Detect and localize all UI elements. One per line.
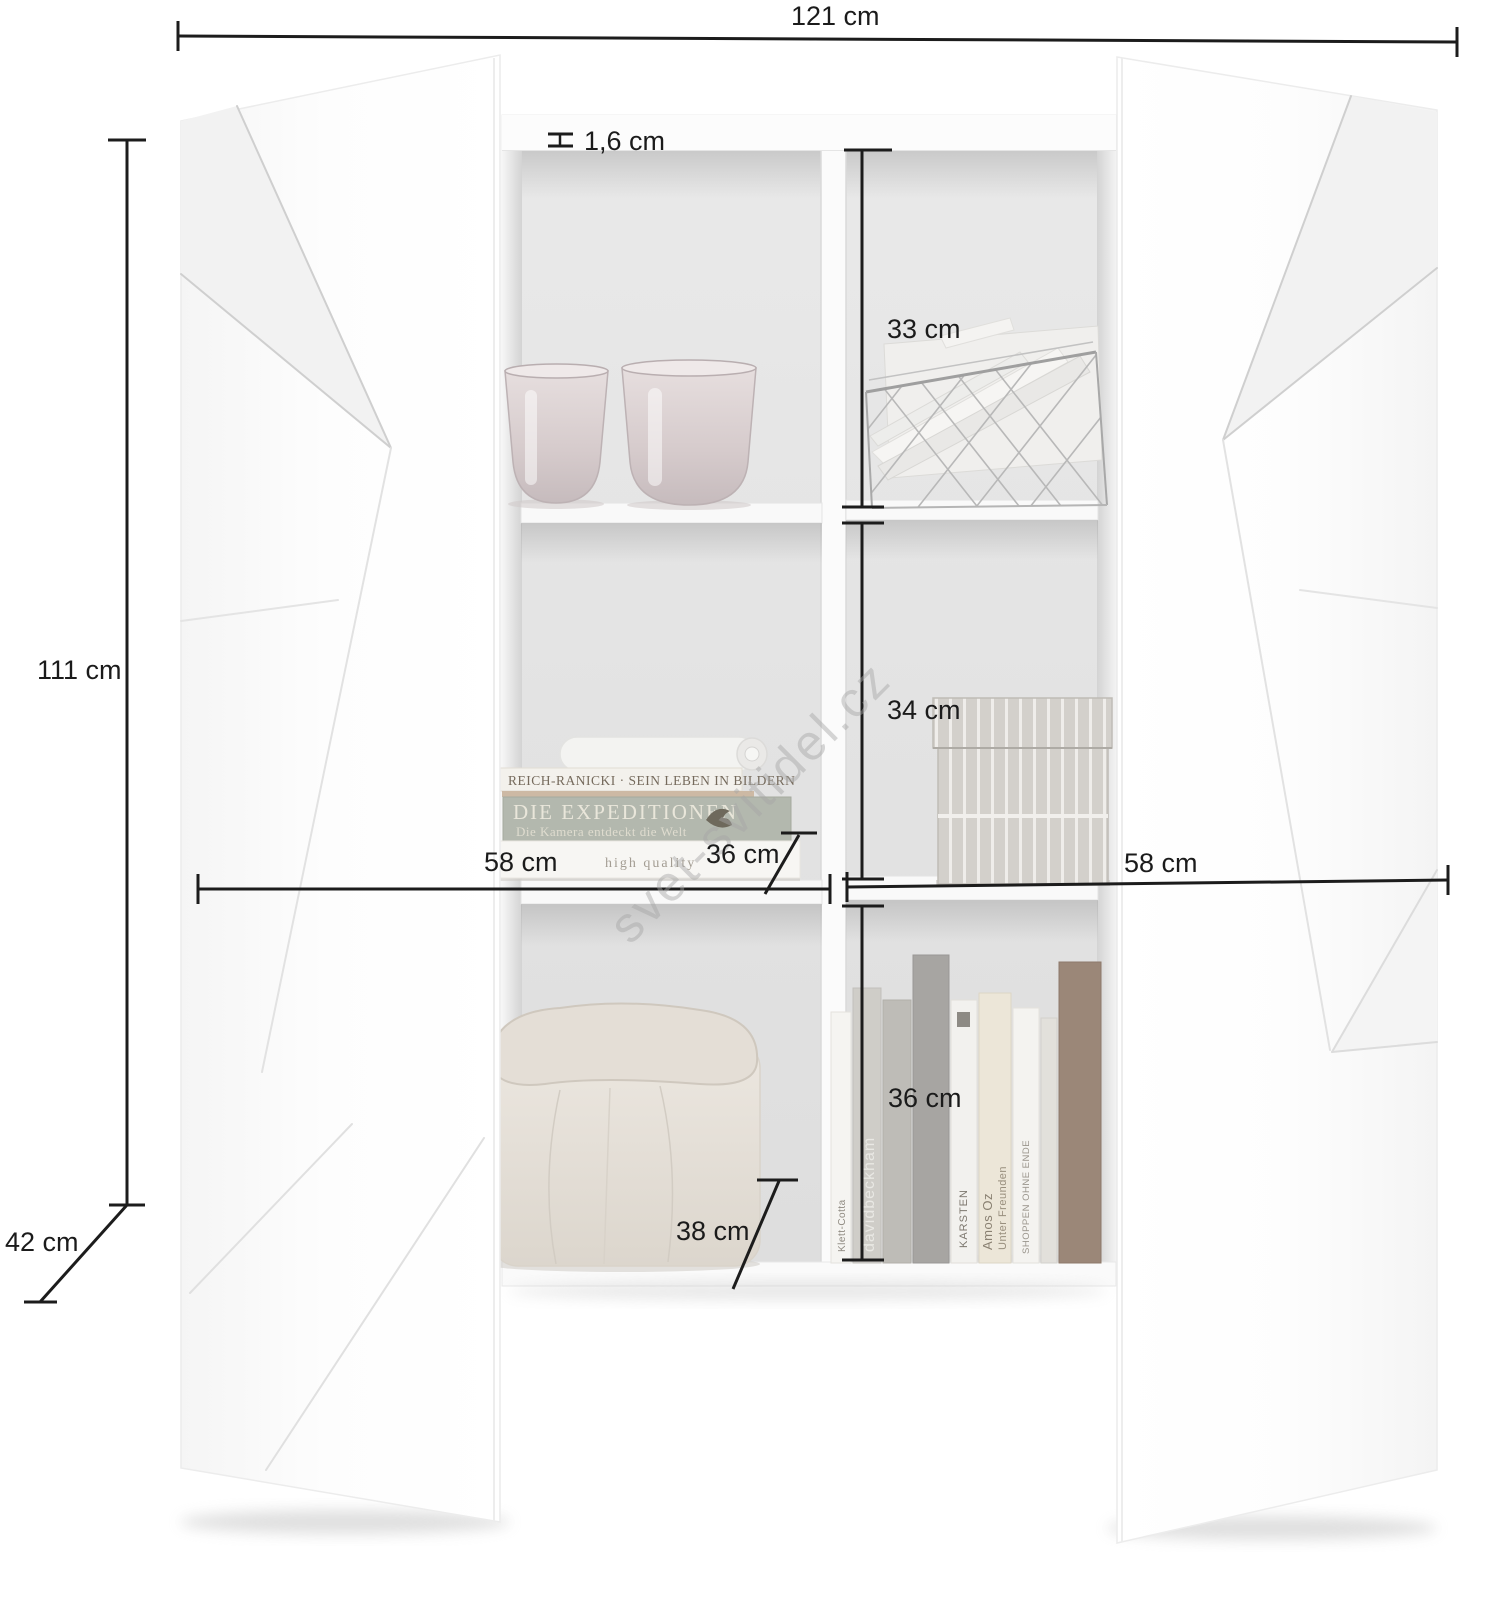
book-spine-text: REICH-RANICKI · SEIN LEBEN IN BILDERN	[508, 773, 795, 788]
cabinet-illustration: REICH-RANICKI · SEIN LEBEN IN BILDERN DI…	[0, 0, 1496, 1600]
glass-rim	[505, 364, 608, 378]
left-door	[181, 55, 500, 1522]
dim-label-right-width: 58 cm	[1124, 849, 1198, 879]
book-spine-text: SHOPPEN OHNE ENDE	[1021, 1140, 1032, 1254]
dim-label-top-compartment: 33 cm	[887, 315, 961, 345]
glass-highlight	[525, 390, 537, 485]
shelf-top-right	[846, 500, 1098, 520]
shelf-shadow	[846, 520, 1098, 560]
dim-label-total-width: 121 cm	[791, 2, 880, 32]
drinking-glass	[505, 371, 608, 503]
book-spine-title: DIE EXPEDITIONEN	[513, 800, 738, 824]
glass-highlight	[648, 388, 662, 486]
book-spine-text: high quality	[605, 856, 696, 871]
cabinet-shadow	[508, 1282, 1108, 1300]
right-door	[1117, 57, 1437, 1543]
paper-roll	[560, 737, 756, 771]
paper-roll-spiral	[745, 747, 759, 761]
book-spine-subtitle: Die Kamera entdeckt die Welt	[516, 824, 687, 839]
furniture-dimension-diagram: REICH-RANICKI · SEIN LEBEN IN BILDERN DI…	[0, 0, 1496, 1600]
book-thin-edge	[502, 791, 754, 797]
bag-rolled-rim	[490, 1003, 757, 1084]
dim-label-left-width: 58 cm	[484, 848, 558, 878]
book-spine-text: KARSTEN	[958, 1189, 970, 1248]
drinking-glass	[622, 368, 756, 505]
standing-book	[1059, 962, 1101, 1263]
dim-label-panel-thickness: 1,6 cm	[584, 127, 665, 157]
book-spine-text: Unter Freunden	[997, 1166, 1009, 1250]
book-spine-text: davidbeckham	[861, 1137, 878, 1252]
dim-label-middle-compartment: 34 cm	[887, 696, 961, 726]
interior-ceiling-shadow	[521, 151, 1098, 199]
mosaic-box	[933, 698, 1112, 886]
book-spine-text: Amos Oz	[980, 1193, 995, 1250]
dim-label-bottom-depth: 38 cm	[676, 1217, 750, 1247]
dim-label-total-depth: 42 cm	[5, 1228, 79, 1258]
shelf-shadow	[521, 904, 822, 946]
dim-label-bottom-compartment: 36 cm	[888, 1084, 962, 1114]
dim-line-total-width	[178, 36, 1457, 42]
publisher-logo-icon	[957, 1012, 970, 1027]
book-spine-text: Klett-Cotta	[837, 1199, 848, 1252]
glass-rim	[622, 360, 756, 376]
dim-label-total-height: 111 cm	[37, 656, 122, 686]
standing-book	[1041, 1018, 1057, 1263]
shelf-shadow	[521, 523, 822, 563]
shelf-middle-left	[521, 880, 822, 904]
standing-books: Klett-Cotta davidbeckham KARSTEN Amos Oz…	[831, 955, 1101, 1263]
standing-book	[883, 1000, 911, 1263]
dim-label-middle-depth: 36 cm	[706, 840, 780, 870]
